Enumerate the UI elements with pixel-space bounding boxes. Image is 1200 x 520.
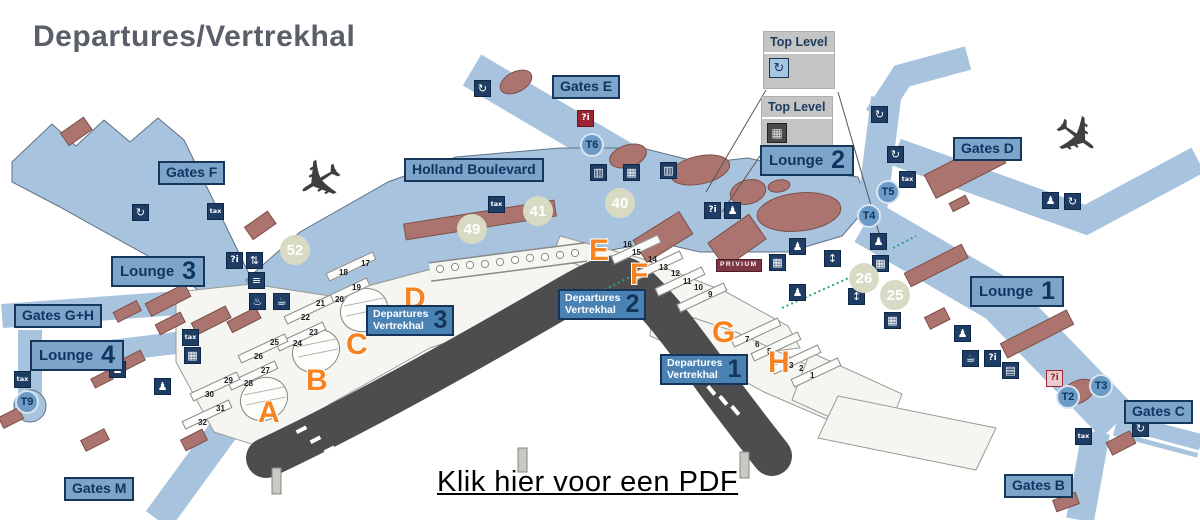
tax-refund-icon: tax xyxy=(207,203,224,220)
departures-hall-1-label: DeparturesVertrekhal 1 xyxy=(660,354,748,385)
desk-number: 9 xyxy=(708,291,712,299)
transfer-icon: ↻ xyxy=(132,204,149,221)
departures-hall-3-label: DeparturesVertrekhal 3 xyxy=(366,305,454,336)
tax-refund-icon: tax xyxy=(488,196,505,213)
desk-number: 18 xyxy=(339,269,348,277)
passport-icon: ♟ xyxy=(870,233,887,250)
info-icon: ?i xyxy=(984,350,1001,367)
desk-number: 27 xyxy=(261,367,270,375)
pdf-download-link[interactable]: Klik hier voor een PDF xyxy=(437,466,738,499)
locker-icon: ▦ xyxy=(769,254,786,271)
lounge-number: 1 xyxy=(1041,280,1055,303)
zone-letter-f: F xyxy=(630,260,648,290)
zone-letter-e: E xyxy=(589,236,609,266)
info-desk-icon: ♟ xyxy=(954,325,971,342)
transit-point-t4: T4 xyxy=(857,204,881,228)
lounge-2-label: Lounge 2 xyxy=(760,145,854,176)
passport-icon: ♟ xyxy=(1042,192,1059,209)
lounge-number: 2 xyxy=(831,149,845,172)
gates-gh-label: Gates G+H xyxy=(14,304,102,328)
gates-c-label: Gates C xyxy=(1124,400,1193,424)
lounge-word: Lounge xyxy=(979,283,1033,300)
locker-icon: ▦ xyxy=(184,347,201,364)
shower-icon: ♨ xyxy=(249,293,266,310)
passport-icon: ♟ xyxy=(154,378,171,395)
transfer-icon: ↻ xyxy=(871,106,888,123)
lounge-number: 4 xyxy=(101,344,115,367)
top-level-legend-1: Top Level ↻ xyxy=(763,31,835,89)
desk-number: 31 xyxy=(216,405,225,413)
zone-letter-g: G xyxy=(712,318,735,348)
legend-label: Top Level xyxy=(764,32,834,54)
locker-icon: ▦ xyxy=(767,123,787,143)
locker-icon: ▦ xyxy=(884,312,901,329)
gates-m-label: Gates M xyxy=(64,477,134,501)
tax-refund-icon: tax xyxy=(182,329,199,346)
gates-d-label: Gates D xyxy=(953,137,1022,161)
lounge-word: Lounge xyxy=(769,152,823,169)
area-number-40: 40 xyxy=(605,188,635,218)
escalator-icon: ⇅ xyxy=(246,252,263,269)
desk-number: 15 xyxy=(632,249,641,257)
desk-number: 29 xyxy=(224,377,233,385)
tax-refund-icon: tax xyxy=(14,371,31,388)
lounge-word: Lounge xyxy=(120,263,174,280)
airport-map: Departures/Vertrekhal Klik hier voor een… xyxy=(0,0,1200,520)
gates-e-label: Gates E xyxy=(552,75,620,99)
gates-b-label: Gates B xyxy=(1004,474,1073,498)
transit-point-t2: T2 xyxy=(1056,385,1080,409)
desk-number: 26 xyxy=(254,353,263,361)
holland-boulevard-label: Holland Boulevard xyxy=(404,158,544,182)
transfer-icon: ↻ xyxy=(1064,193,1081,210)
desk-number: 14 xyxy=(648,256,657,264)
departure-hall-text: DeparturesVertrekhal xyxy=(373,309,428,332)
transit-point-t9: T9 xyxy=(15,390,39,414)
gates-f-label: Gates F xyxy=(158,161,225,185)
baggage-icon: ▥ xyxy=(590,164,607,181)
desk-number: 2 xyxy=(799,365,803,373)
info-icon-red: ?i xyxy=(577,110,594,127)
departure-hall-number: 3 xyxy=(433,309,447,332)
desk-number: 28 xyxy=(244,380,253,388)
desk-number: 21 xyxy=(316,300,325,308)
departure-hall-number: 1 xyxy=(727,358,741,381)
zone-letter-b: B xyxy=(306,366,328,396)
locker-icon: ▦ xyxy=(623,164,640,181)
tax-refund-icon: tax xyxy=(899,171,916,188)
area-number-26: 26 xyxy=(849,263,879,293)
lounge-1-label: Lounge 1 xyxy=(970,276,1064,307)
desk-number: 10 xyxy=(694,284,703,292)
departures-hall-2-label: DeparturesVertrekhal 2 xyxy=(558,289,646,320)
desk-number: 1 xyxy=(810,372,814,380)
transfer-icon: ↻ xyxy=(887,146,904,163)
departure-hall-number: 2 xyxy=(625,293,639,316)
info-icon-pink: ?i xyxy=(1046,370,1063,387)
transfer-icon: ↻ xyxy=(474,80,491,97)
area-number-41: 41 xyxy=(523,196,553,226)
desk-number: 23 xyxy=(309,329,318,337)
page-title: Departures/Vertrekhal xyxy=(33,20,355,54)
passport-icon: ♟ xyxy=(789,284,806,301)
desk-number: 7 xyxy=(745,336,749,344)
lift-icon: ↕ xyxy=(824,250,841,267)
privium-label: PRIVIUM xyxy=(716,259,762,272)
desk-number: 6 xyxy=(755,341,759,349)
baggage-icon: ▥ xyxy=(660,162,677,179)
info-icon: ?i xyxy=(226,252,243,269)
desk-number: 24 xyxy=(293,340,302,348)
desk-number: 16 xyxy=(623,241,632,249)
transit-point-t5: T5 xyxy=(876,180,900,204)
cafe-icon: ☕ xyxy=(962,350,979,367)
desk-number: 20 xyxy=(335,296,344,304)
desk-number: 30 xyxy=(205,391,214,399)
area-number-25: 25 xyxy=(880,280,910,310)
desk-number: 25 xyxy=(270,339,279,347)
service-desk-icon: ♟ xyxy=(724,202,741,219)
area-number-52: 52 xyxy=(280,235,310,265)
stairs-icon: ≡ xyxy=(248,272,265,289)
lounge-3-label: Lounge 3 xyxy=(111,256,205,287)
desk-number: 22 xyxy=(301,314,310,322)
desk-number: 11 xyxy=(683,278,691,286)
desk-number: 12 xyxy=(671,270,680,278)
info-icon: ?i xyxy=(704,202,721,219)
zone-letter-h: H xyxy=(768,348,790,378)
legend-label: Top Level xyxy=(762,97,832,119)
desk-number: 17 xyxy=(361,260,370,268)
zone-letter-a: A xyxy=(258,398,280,428)
cafe-icon: ☕ xyxy=(273,293,290,310)
desk-number: 13 xyxy=(659,264,668,272)
transfer-icon: ↻ xyxy=(769,58,789,78)
desk-number: 19 xyxy=(352,284,361,292)
lounge-number: 3 xyxy=(182,260,196,283)
zone-letter-c: C xyxy=(346,330,368,360)
shop-icon: ▤ xyxy=(1002,362,1019,379)
passport-icon: ♟ xyxy=(789,238,806,255)
area-number-49: 49 xyxy=(457,214,487,244)
transit-point-t6: T6 xyxy=(580,133,604,157)
transit-point-t3: T3 xyxy=(1089,374,1113,398)
departure-hall-text: DeparturesVertrekhal xyxy=(667,358,722,381)
tax-refund-icon: tax xyxy=(1075,428,1092,445)
lounge-4-label: Lounge 4 xyxy=(30,340,124,371)
departure-hall-text: DeparturesVertrekhal xyxy=(565,293,620,316)
desk-number: 32 xyxy=(198,419,207,427)
lounge-word: Lounge xyxy=(39,347,93,364)
